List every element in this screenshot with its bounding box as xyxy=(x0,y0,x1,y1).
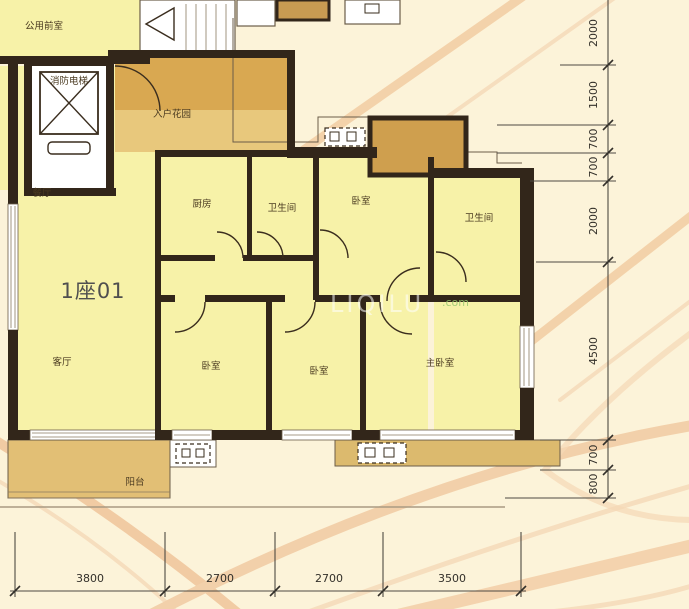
floorplan-canvas: 公用前室 消防电梯 入户花园 餐厅 1座01 客厅 厨房 卫生间 卧室 卫生间 … xyxy=(0,0,689,609)
unit-number-label: 1座01 xyxy=(60,279,125,303)
balcony-room xyxy=(8,440,170,498)
fire-elevator-label: 消防电梯 xyxy=(50,75,89,87)
kitchen-label: 厨房 xyxy=(192,198,211,210)
ac-unit-icon xyxy=(325,128,365,146)
entry-garden-label: 入户花园 xyxy=(153,108,191,120)
master-bedroom-label: 主卧室 xyxy=(426,357,455,369)
bedroom-left-label: 卧室 xyxy=(201,360,220,372)
watermark-suffix: .com xyxy=(442,296,469,309)
dim-bottom-2700a: 2700 xyxy=(206,572,234,585)
dim-bottom-3500: 3500 xyxy=(438,572,466,585)
ac-unit-icon xyxy=(176,444,210,463)
dining-label: 餐厅 xyxy=(32,187,52,199)
public-lobby-room xyxy=(0,0,140,58)
living-label: 客厅 xyxy=(52,356,72,368)
dim-right-700c: 700 xyxy=(587,445,600,466)
dim-right-700a: 700 xyxy=(587,129,600,150)
neighbor-planter xyxy=(277,0,329,20)
balcony-label: 阳台 xyxy=(125,476,144,488)
bath-right-label: 卫生间 xyxy=(465,212,494,224)
dim-right-1500: 1500 xyxy=(587,81,600,109)
neighbor-structure xyxy=(237,0,275,26)
dim-right-800: 800 xyxy=(587,474,600,495)
bedroom-top-label: 卧室 xyxy=(351,195,370,207)
stairwell xyxy=(140,0,235,56)
entry-garden-upper xyxy=(115,58,293,110)
floorplan-page: 公用前室 消防电梯 入户花园 餐厅 1座01 客厅 厨房 卫生间 卧室 卫生间 … xyxy=(0,0,689,609)
bedroom-mid-label: 卧室 xyxy=(309,365,328,377)
dim-bottom-2700b: 2700 xyxy=(315,572,343,585)
planter-platform xyxy=(370,118,466,175)
dim-right-2000b: 2000 xyxy=(587,207,600,235)
dim-right-700b: 700 xyxy=(587,157,600,178)
bath-top-label: 卫生间 xyxy=(268,202,297,214)
watermark-text: LIQILU xyxy=(330,290,424,318)
public-lobby-label: 公用前室 xyxy=(25,20,63,32)
entry-garden-lower xyxy=(115,110,293,152)
dim-bottom-3800: 3800 xyxy=(76,572,104,585)
dim-right-2000a: 2000 xyxy=(587,19,600,47)
dim-right-4500: 4500 xyxy=(587,337,600,365)
